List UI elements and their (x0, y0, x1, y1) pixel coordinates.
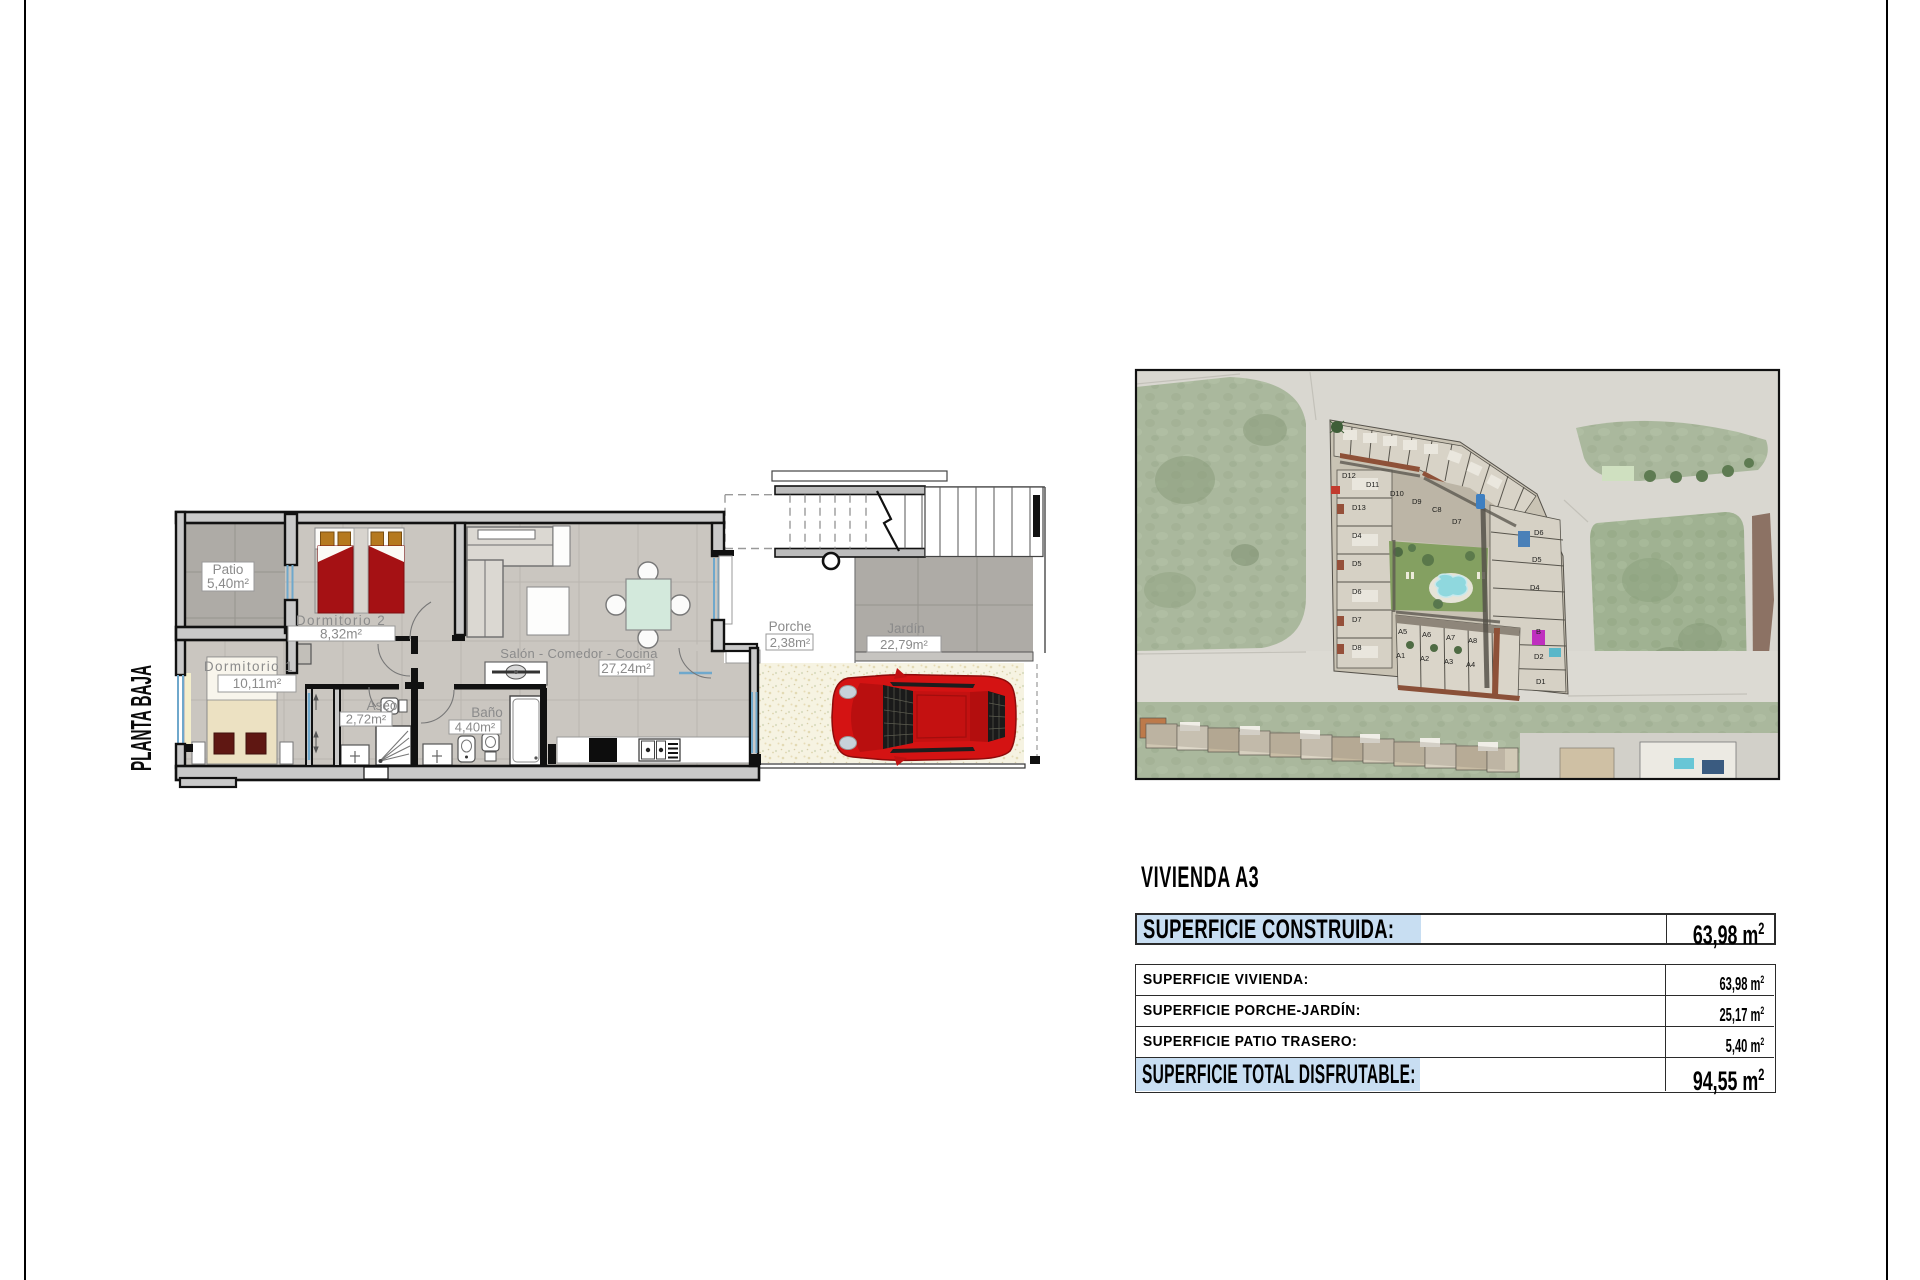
svg-text:Porche: Porche (769, 619, 812, 634)
svg-text:5,40m²: 5,40m² (207, 576, 250, 591)
svg-text:A6: A6 (1422, 630, 1431, 639)
svg-text:4,40m²: 4,40m² (455, 720, 496, 735)
svg-text:PLANTA BAJA: PLANTA BAJA (126, 665, 158, 771)
svg-text:D4: D4 (1530, 583, 1540, 592)
svg-text:8,32m²: 8,32m² (320, 627, 363, 642)
svg-text:D5: D5 (1352, 559, 1362, 568)
svg-text:D10: D10 (1390, 489, 1404, 498)
svg-text:Salón - Comedor - Cocina: Salón - Comedor - Cocina (500, 646, 658, 661)
svg-text:10,11m²: 10,11m² (233, 676, 282, 691)
svg-text:A1: A1 (1396, 651, 1405, 660)
svg-text:2,38m²: 2,38m² (770, 635, 811, 650)
svg-text:A7: A7 (1446, 633, 1455, 642)
svg-text:Jardín: Jardín (887, 621, 925, 636)
svg-text:Dormitorio 1: Dormitorio 1 (204, 659, 294, 674)
svg-text:D9: D9 (1412, 497, 1422, 506)
svg-text:2,72m²: 2,72m² (346, 712, 387, 727)
svg-text:D7: D7 (1352, 615, 1362, 624)
svg-text:27,24m²: 27,24m² (601, 661, 651, 676)
svg-text:A2: A2 (1420, 654, 1429, 663)
svg-text:D4: D4 (1352, 531, 1362, 540)
svg-text:D8: D8 (1352, 643, 1362, 652)
svg-text:D7: D7 (1452, 517, 1462, 526)
svg-text:D5: D5 (1532, 555, 1542, 564)
svg-text:D6: D6 (1534, 528, 1544, 537)
svg-text:22,79m²: 22,79m² (880, 637, 928, 652)
svg-text:D11: D11 (1366, 480, 1379, 489)
svg-text:D12: D12 (1342, 471, 1356, 480)
svg-text:D13: D13 (1352, 503, 1366, 512)
svg-text:A8: A8 (1468, 636, 1477, 645)
svg-text:B: B (1536, 627, 1541, 636)
svg-text:D1: D1 (1536, 677, 1546, 686)
svg-text:Baño: Baño (471, 705, 503, 720)
svg-text:D6: D6 (1352, 587, 1362, 596)
svg-text:C8: C8 (1432, 505, 1442, 514)
svg-text:A3: A3 (1444, 657, 1453, 666)
svg-text:D2: D2 (1534, 652, 1544, 661)
svg-text:A5: A5 (1398, 627, 1407, 636)
svg-text:Patio: Patio (213, 562, 244, 577)
svg-text:A4: A4 (1466, 660, 1475, 669)
